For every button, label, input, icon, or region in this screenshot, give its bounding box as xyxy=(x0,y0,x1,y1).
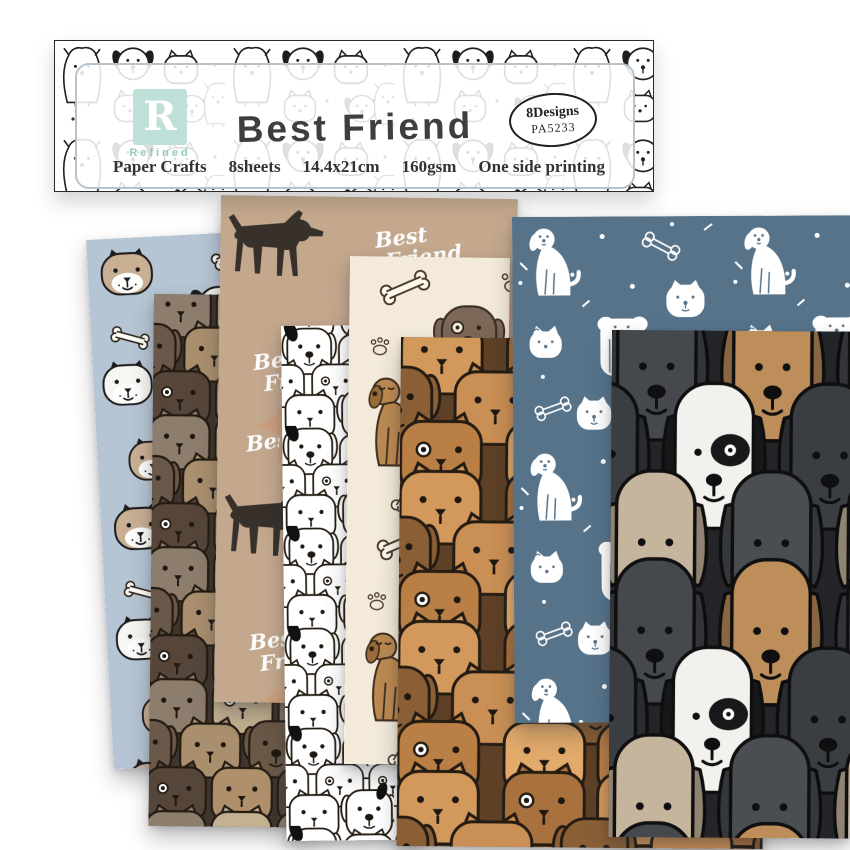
product-image: Best Friend Best Friend Best xyxy=(0,0,850,850)
badge-product-code: PA5233 xyxy=(531,119,576,136)
spec-size: 14.4x21cm xyxy=(303,157,380,177)
sheet-charcoal-dog-crowd xyxy=(608,330,850,839)
banner-label: R Refined Best Friend 8Designs PA5233 Pa… xyxy=(75,63,635,189)
banner: R Refined Best Friend 8Designs PA5233 Pa… xyxy=(54,40,654,192)
spec-category: Paper Crafts xyxy=(113,157,207,177)
charcoal-crowd-pattern xyxy=(608,330,850,839)
spec-weight: 160gsm xyxy=(402,157,457,177)
spec-sheet-count: 8sheets xyxy=(229,157,281,177)
product-specs-row: Paper Crafts 8sheets 14.4x21cm 160gsm On… xyxy=(113,157,605,177)
spec-printing: One side printing xyxy=(478,157,605,177)
